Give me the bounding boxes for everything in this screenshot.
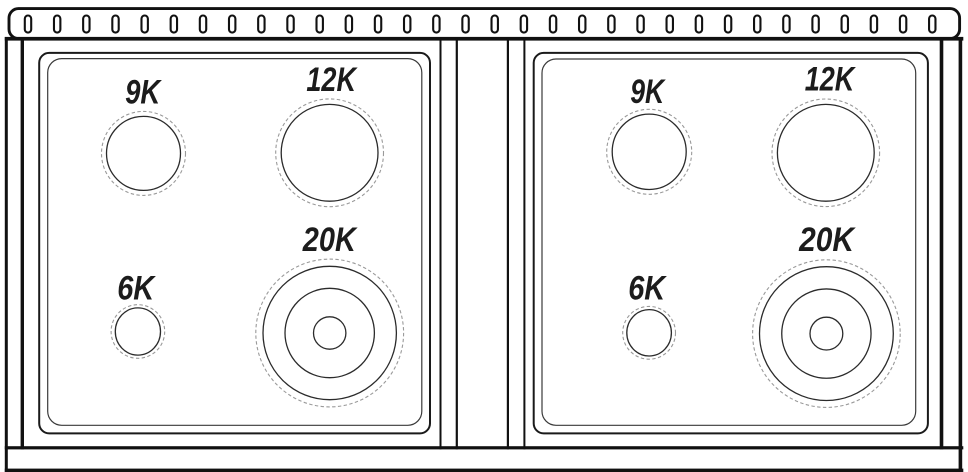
svg-text:12K: 12K xyxy=(306,61,358,99)
svg-text:6K: 6K xyxy=(117,270,156,308)
svg-text:9K: 9K xyxy=(630,73,666,111)
svg-text:20K: 20K xyxy=(798,221,856,259)
svg-text:20K: 20K xyxy=(302,221,358,259)
svg-text:6K: 6K xyxy=(628,269,667,307)
svg-text:12K: 12K xyxy=(805,61,857,99)
svg-text:9K: 9K xyxy=(125,74,162,112)
